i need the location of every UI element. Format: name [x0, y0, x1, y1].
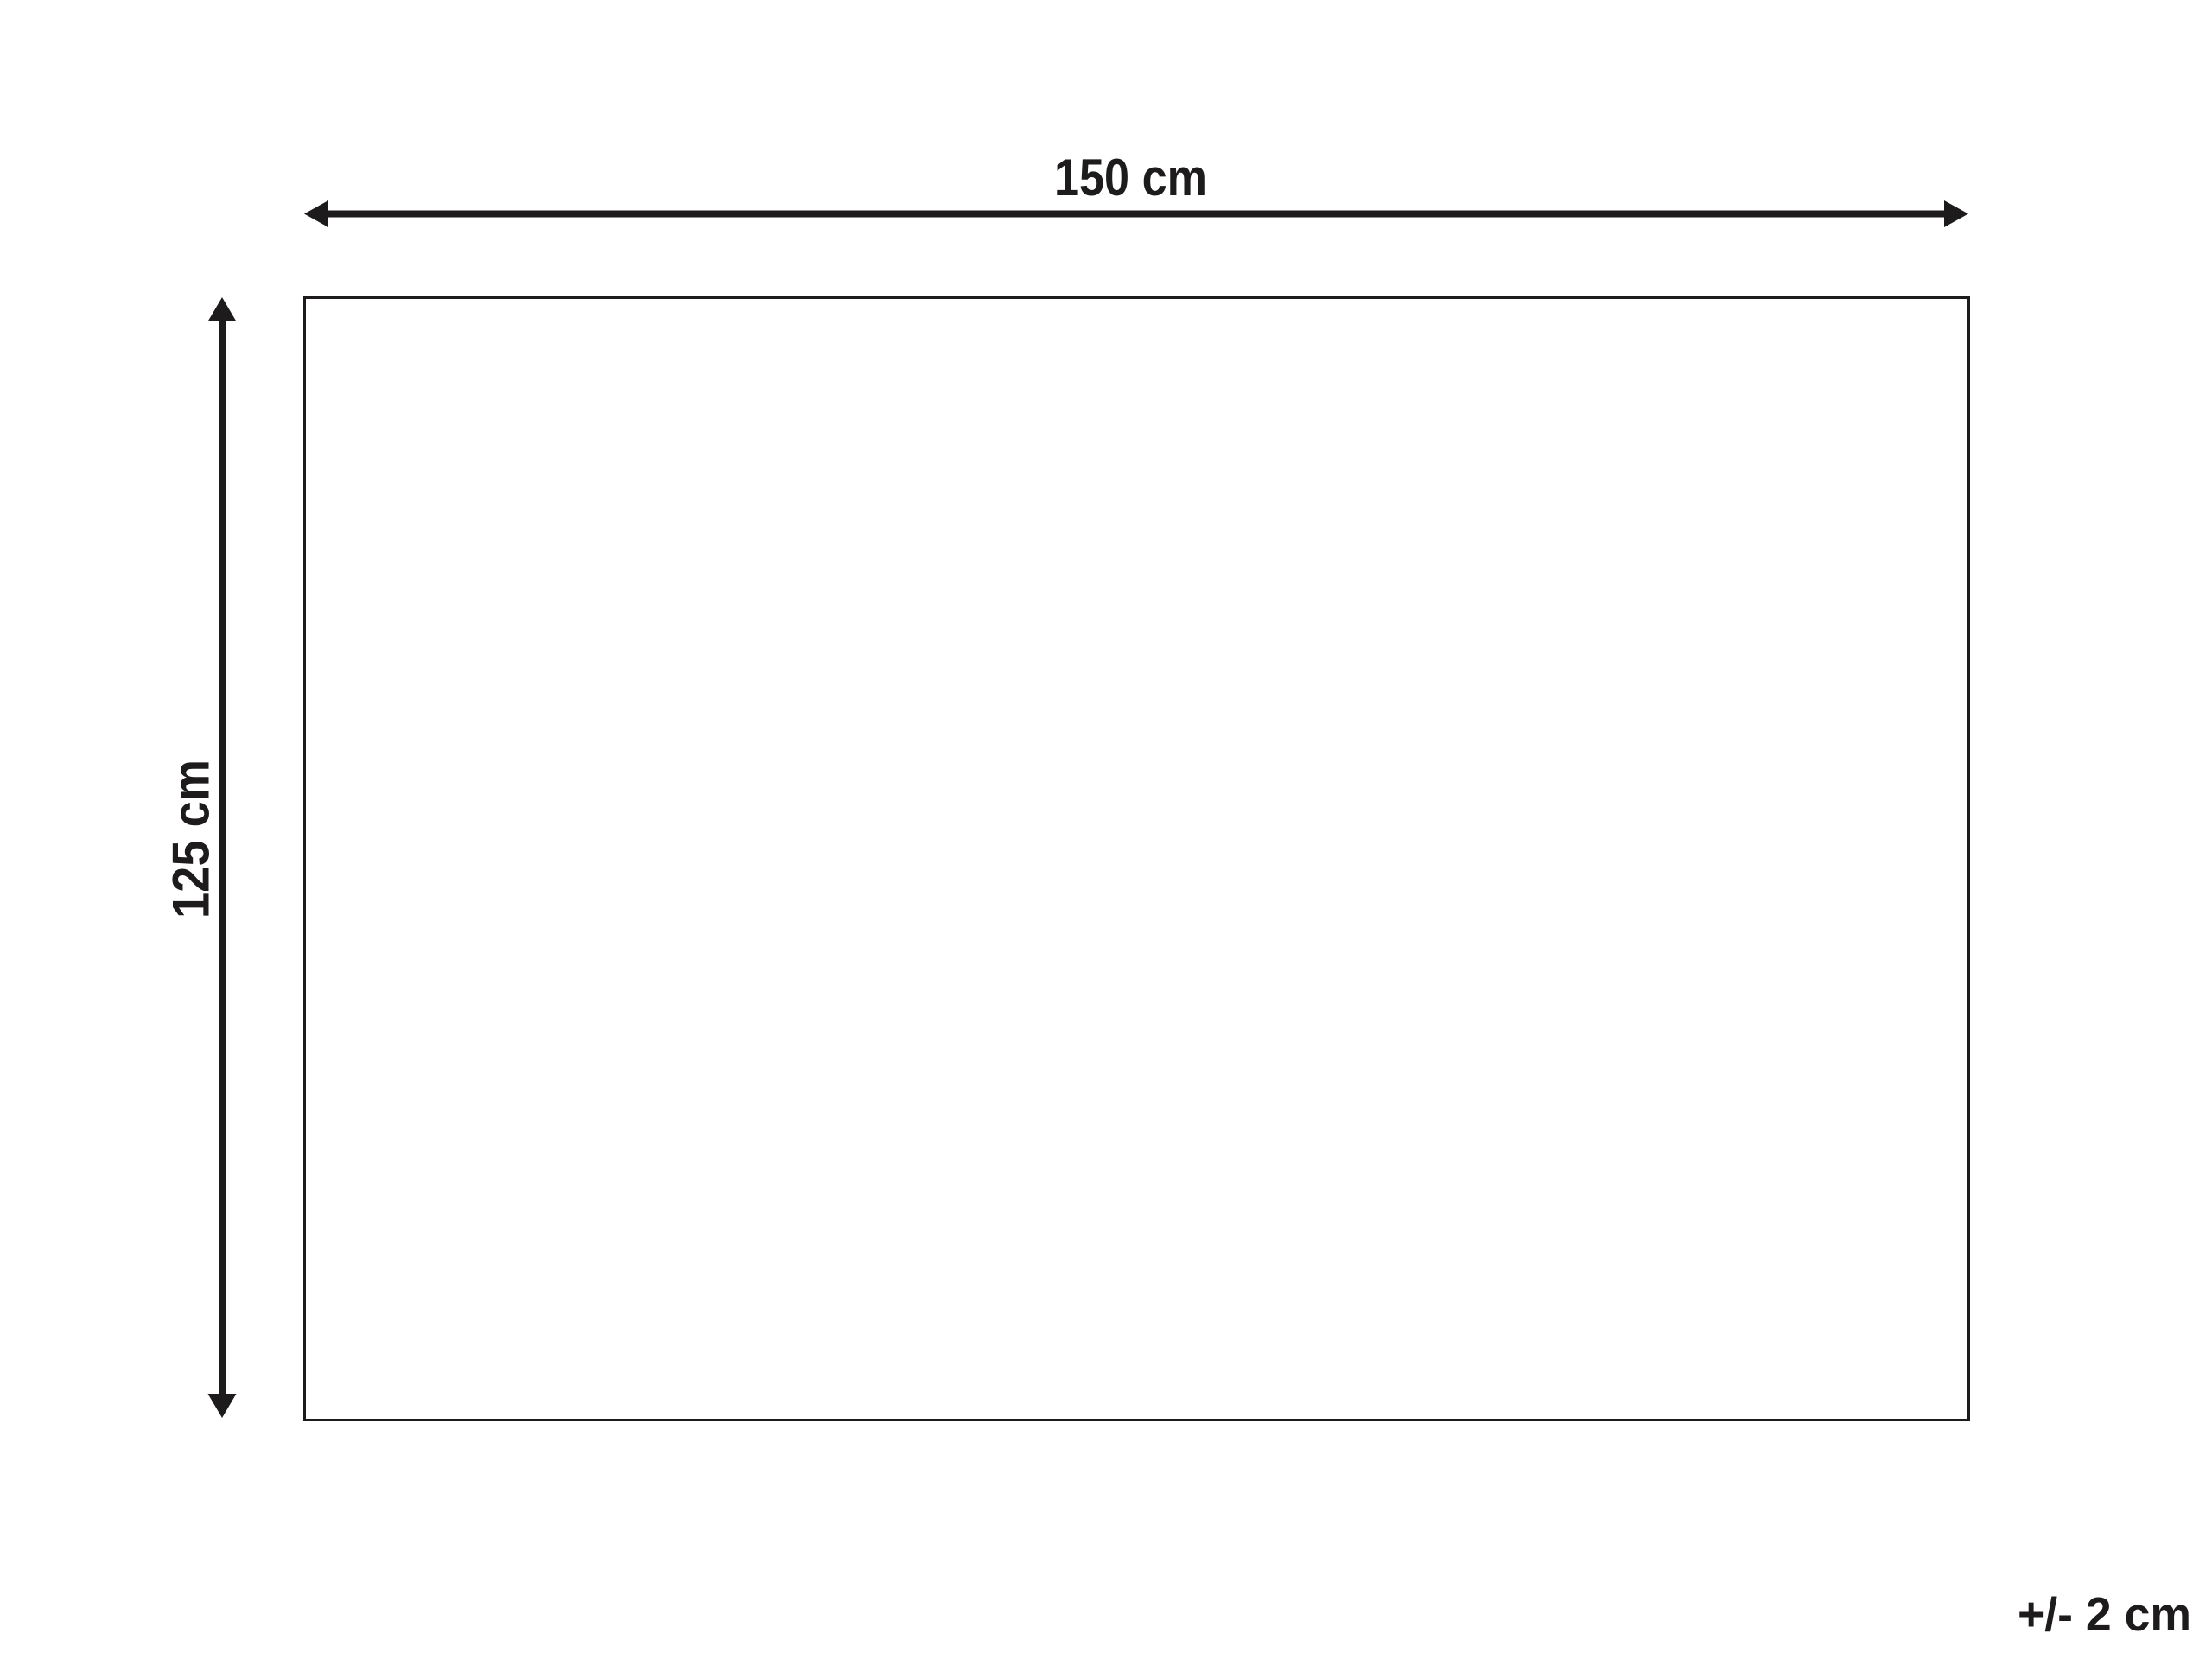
svg-text:125 cm: 125 cm [162, 760, 220, 918]
svg-text:150 cm: 150 cm [1054, 149, 1207, 207]
svg-text:+/- 2 cm: +/- 2 cm [2018, 1587, 2191, 1641]
